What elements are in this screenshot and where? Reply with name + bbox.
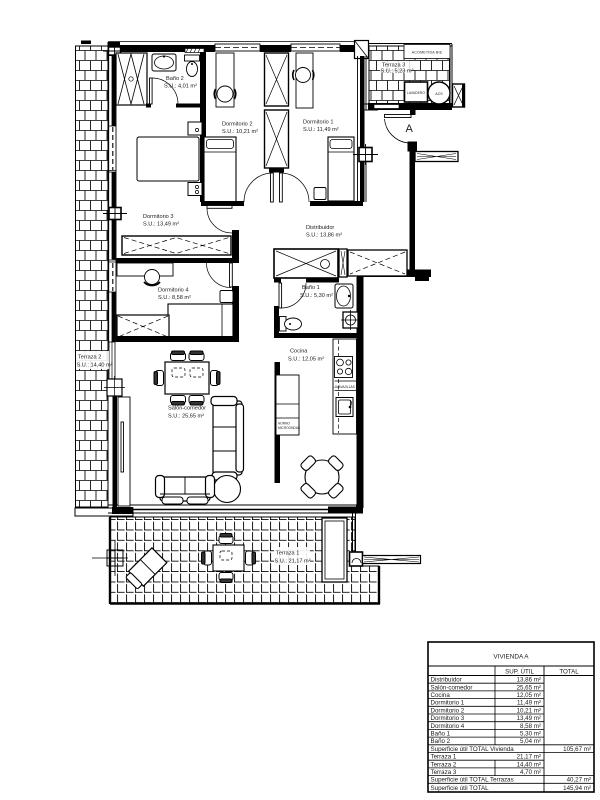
svg-text:HORNO: HORNO: [278, 422, 290, 426]
svg-text:TOTAL: TOTAL: [559, 668, 579, 675]
svg-text:Baño 2: Baño 2: [166, 76, 184, 82]
svg-text:S.U.: 5,23 m²: S.U.: 5,23 m²: [381, 69, 414, 75]
svg-text:145,94 m²: 145,94 m²: [563, 785, 591, 792]
svg-text:Dormitorio 2: Dormitorio 2: [431, 707, 465, 714]
svg-text:Dormitorio 1: Dormitorio 1: [303, 120, 333, 126]
svg-text:12,05 m²: 12,05 m²: [517, 692, 541, 699]
svg-text:S.U.: 10,21 m²: S.U.: 10,21 m²: [222, 129, 258, 135]
svg-text:S.U.: 8,58 m²: S.U.: 8,58 m²: [158, 295, 191, 301]
svg-text:ACOMETIDA BIE: ACOMETIDA BIE: [412, 51, 443, 55]
svg-text:Cocina: Cocina: [290, 349, 308, 355]
svg-text:40,27 m²: 40,27 m²: [567, 777, 591, 784]
svg-text:105,67 m²: 105,67 m²: [563, 746, 591, 753]
svg-text:Superficie útil TOTAL Terrazas: Superficie útil TOTAL Terrazas: [431, 777, 514, 784]
svg-text:10,21 m²: 10,21 m²: [517, 707, 541, 714]
svg-text:S.U.: 5,30 m²: S.U.: 5,30 m²: [300, 293, 333, 299]
svg-text:S.U.: 4,01 m²: S.U.: 4,01 m²: [164, 84, 197, 90]
svg-text:S.U.: 21,17 m²: S.U.: 21,17 m²: [275, 559, 311, 565]
svg-text:Terraza 2: Terraza 2: [431, 761, 457, 768]
svg-text:Dormitorio 4: Dormitorio 4: [158, 288, 188, 294]
svg-text:MICROONDAS: MICROONDAS: [278, 426, 300, 430]
svg-text:Baño 1: Baño 1: [302, 285, 320, 291]
svg-text:Dormitorio 3: Dormitorio 3: [143, 214, 173, 220]
svg-text:Salón-comedor: Salón-comedor: [431, 684, 473, 691]
svg-text:13,86 m²: 13,86 m²: [517, 677, 541, 684]
svg-text:S.U.: 25,65 m²: S.U.: 25,65 m²: [168, 414, 204, 420]
svg-text:Distribuidor: Distribuidor: [306, 225, 334, 231]
svg-text:Cocina: Cocina: [431, 692, 451, 699]
svg-text:S.U.: 14,40 m²: S.U.: 14,40 m²: [77, 363, 113, 369]
svg-text:S.U.: 11,49 m²: S.U.: 11,49 m²: [303, 127, 339, 133]
svg-text:Baño 1: Baño 1: [431, 731, 451, 738]
svg-text:14,40 m²: 14,40 m²: [517, 761, 541, 768]
svg-text:Superficie útil TOTAL Vivienda: Superficie útil TOTAL Vivienda: [431, 746, 515, 753]
svg-text:5,30 m²: 5,30 m²: [520, 731, 541, 738]
svg-text:Terraza 2: Terraza 2: [78, 355, 101, 361]
svg-text:VIVIENDA A: VIVIENDA A: [493, 654, 529, 661]
svg-text:21,17 m²: 21,17 m²: [517, 754, 541, 761]
svg-text:ACS: ACS: [435, 92, 443, 96]
svg-text:Baño 2: Baño 2: [431, 738, 451, 745]
svg-text:11,49 m²: 11,49 m²: [517, 700, 541, 707]
svg-text:5,04 m²: 5,04 m²: [520, 738, 541, 745]
svg-text:A: A: [406, 123, 414, 135]
svg-text:Terraza 1: Terraza 1: [431, 754, 457, 761]
svg-text:Terraza 3: Terraza 3: [431, 769, 457, 776]
svg-text:Salón-comedor: Salón-comedor: [168, 406, 206, 412]
svg-text:8,58 m²: 8,58 m²: [520, 723, 541, 730]
svg-text:SUP. ÚTIL: SUP. ÚTIL: [505, 668, 534, 675]
svg-text:S.U.: 13,86 m²: S.U.: 13,86 m²: [306, 233, 342, 239]
svg-text:LAVAVAJILLAS: LAVAVAJILLAS: [333, 385, 355, 389]
svg-text:Distribuidor: Distribuidor: [431, 677, 462, 684]
svg-text:Dormitorio 4: Dormitorio 4: [431, 723, 465, 730]
svg-text:4,70 m²: 4,70 m²: [520, 769, 541, 776]
svg-text:Dormitorio 3: Dormitorio 3: [431, 715, 465, 722]
svg-text:Terraza 1: Terraza 1: [276, 551, 299, 557]
svg-text:S.U.: 12,05 m²: S.U.: 12,05 m²: [288, 357, 324, 363]
svg-text:Superficie útil TOTAL: Superficie útil TOTAL: [431, 785, 490, 792]
svg-text:25,65 m²: 25,65 m²: [517, 684, 541, 691]
svg-text:Dormitorio 1: Dormitorio 1: [431, 700, 465, 707]
svg-text:S.U.: 13,49 m²: S.U.: 13,49 m²: [143, 222, 179, 228]
svg-text:Dormitorio 2: Dormitorio 2: [222, 122, 252, 128]
svg-text:13,49 m²: 13,49 m²: [517, 715, 541, 722]
svg-text:LAVADERO: LAVADERO: [407, 91, 425, 95]
